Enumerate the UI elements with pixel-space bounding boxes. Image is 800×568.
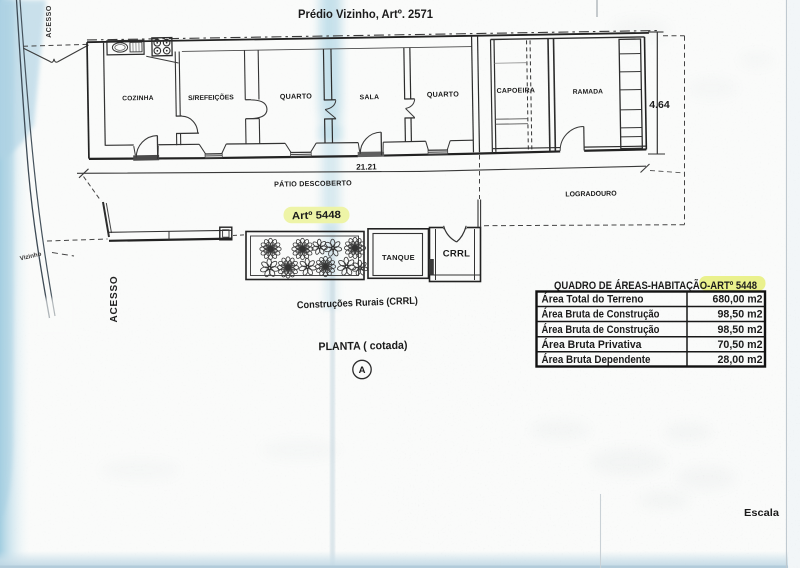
svg-text:A: A	[359, 365, 366, 376]
svg-text:Artº 5448: Artº 5448	[292, 209, 341, 222]
svg-text:LOGRADOURO: LOGRADOURO	[565, 191, 617, 199]
svg-text:Prédio Vizinho, Artº. 2571: Prédio Vizinho, Artº. 2571	[298, 7, 433, 21]
svg-text:21.21: 21.21	[356, 162, 377, 171]
svg-text:Área Bruta Dependente: Área Bruta Dependente	[542, 353, 651, 366]
svg-text:Área Total do Terreno: Área Total do Terreno	[542, 293, 644, 306]
svg-text:PÁTIO DESCOBERTO: PÁTIO DESCOBERTO	[274, 178, 352, 188]
svg-text:70,50 m2: 70,50 m2	[718, 339, 763, 351]
svg-text:SALA: SALA	[360, 94, 380, 101]
svg-text:Área Bruta de Construção: Área Bruta de Construção	[542, 308, 660, 321]
svg-text:CAPOEIRA: CAPOEIRA	[497, 87, 536, 95]
svg-text:TANQUE: TANQUE	[382, 253, 415, 262]
svg-text:98,50 m2: 98,50 m2	[718, 309, 763, 321]
svg-text:QUADRO DE ÁREAS-HABITAÇÃO-ARTº: QUADRO DE ÁREAS-HABITAÇÃO-ARTº 5448	[554, 279, 757, 292]
svg-text:RAMADA: RAMADA	[573, 88, 604, 96]
svg-text:ACESSO: ACESSO	[109, 275, 120, 322]
svg-text:COZINHA: COZINHA	[122, 95, 154, 103]
svg-text:ACESSO: ACESSO	[46, 5, 53, 38]
svg-text:680,00 m2: 680,00 m2	[713, 294, 763, 306]
svg-text:98,50 m2: 98,50 m2	[718, 324, 763, 336]
svg-text:CRRL: CRRL	[443, 249, 471, 260]
svg-text:PLANTA ( cotada): PLANTA ( cotada)	[318, 340, 407, 354]
svg-text:QUARTO: QUARTO	[280, 91, 313, 101]
svg-text:Área Bruta Privativa: Área Bruta Privativa	[542, 338, 643, 351]
svg-text:Área Bruta de Construção: Área Bruta de Construção	[542, 323, 660, 336]
svg-text:QUARTO: QUARTO	[427, 89, 460, 99]
svg-text:Escala: Escala	[744, 508, 779, 519]
svg-text:4.64: 4.64	[649, 99, 670, 111]
svg-text:28,00 m2: 28,00 m2	[718, 354, 763, 366]
